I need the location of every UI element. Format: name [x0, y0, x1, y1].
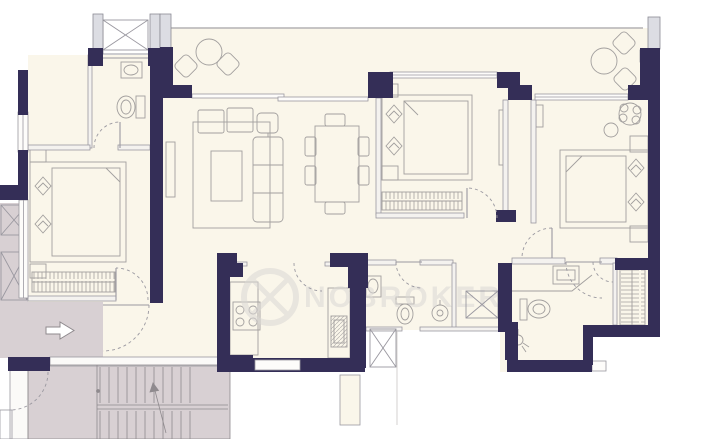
window [592, 361, 606, 371]
pillar [160, 14, 171, 48]
main-band-floor [163, 95, 648, 263]
kitchen-sink-icon [331, 316, 347, 347]
hall-floor [100, 250, 230, 372]
stair-side-strip [10, 368, 28, 439]
sliding-door [278, 97, 368, 101]
lower-unit-edge [340, 375, 360, 425]
sliding-door [192, 94, 284, 98]
balcony-floor [165, 28, 648, 98]
floor-plan: NOBROKER [0, 0, 706, 439]
window [255, 360, 300, 370]
stairwell-floor [28, 365, 230, 439]
pillar [648, 17, 660, 49]
wardrobe-icon [620, 268, 645, 325]
